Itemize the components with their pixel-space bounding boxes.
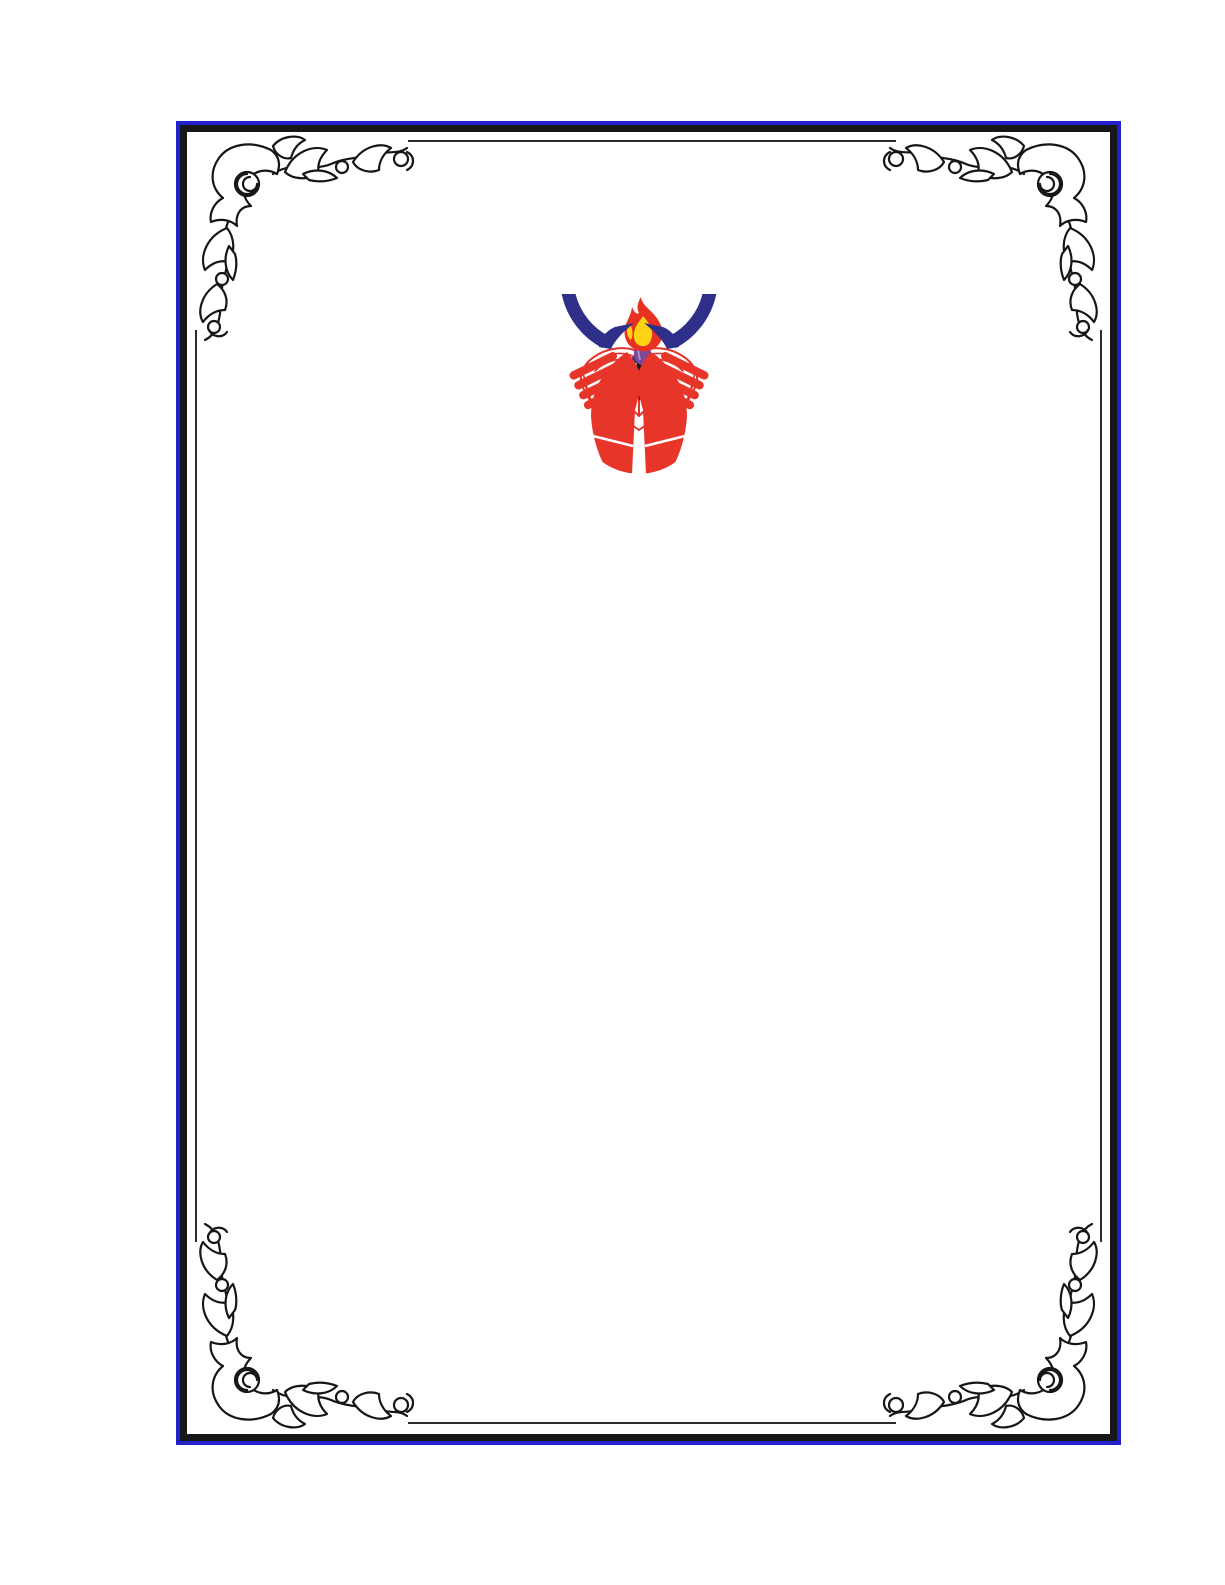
corner-flourish-bottom-right-icon	[878, 1222, 1110, 1434]
corner-flourish-top-right-icon	[878, 130, 1110, 342]
document-page	[0, 0, 1225, 1585]
border-inner-line-bottom	[408, 1422, 896, 1424]
corner-flourish-top-left-icon	[187, 130, 419, 342]
border-inner-line-left	[195, 330, 197, 1242]
corner-flourish-bottom-left-icon	[187, 1222, 419, 1434]
border-inner-line-top	[408, 140, 896, 142]
university-emblem-icon	[547, 294, 733, 490]
border-inner-line-right	[1100, 330, 1102, 1242]
